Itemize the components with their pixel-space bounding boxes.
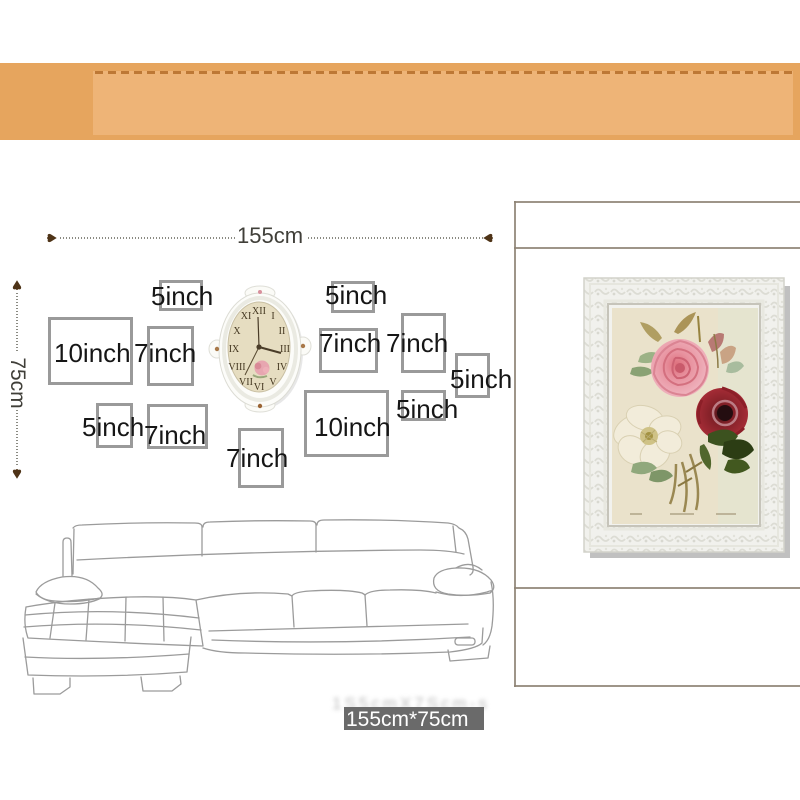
svg-text:XII: XII <box>252 306 266 317</box>
svg-text:XI: XI <box>241 311 252 322</box>
svg-text:V: V <box>269 377 277 388</box>
svg-text:VII: VII <box>239 377 253 388</box>
svg-text:I: I <box>271 311 274 322</box>
svg-text:VIII: VIII <box>228 362 245 373</box>
svg-text:VI: VI <box>254 382 265 393</box>
svg-text:III: III <box>280 344 290 355</box>
svg-text:IX: IX <box>229 344 240 355</box>
svg-text:IV: IV <box>277 362 288 373</box>
svg-text:X: X <box>233 326 241 337</box>
svg-text:II: II <box>279 326 286 337</box>
